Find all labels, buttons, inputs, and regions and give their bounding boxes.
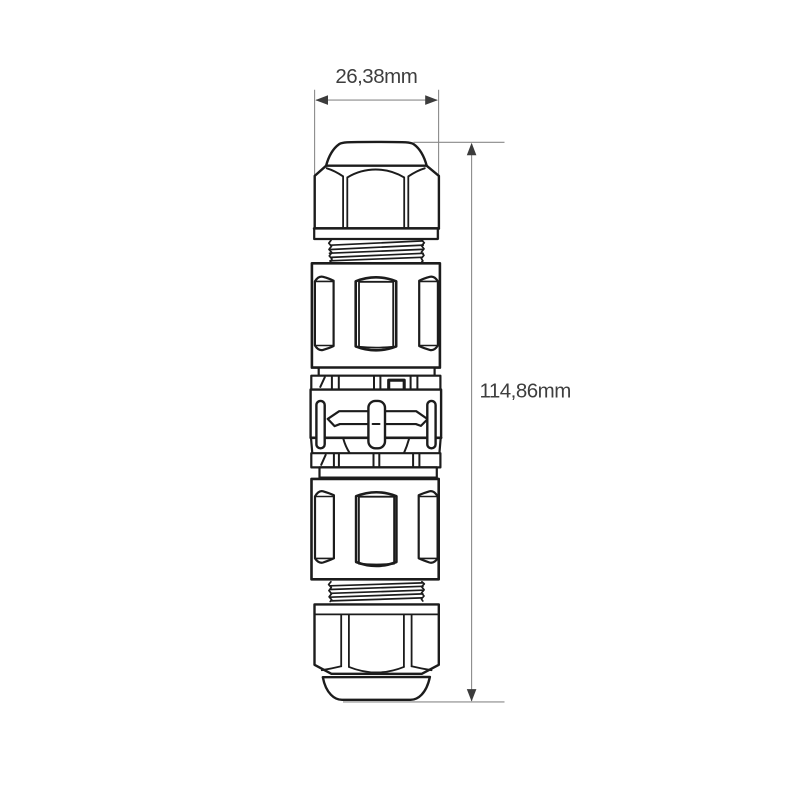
svg-text:26,38mm: 26,38mm [335, 65, 417, 88]
svg-text:114,86mm: 114,86mm [480, 379, 571, 402]
